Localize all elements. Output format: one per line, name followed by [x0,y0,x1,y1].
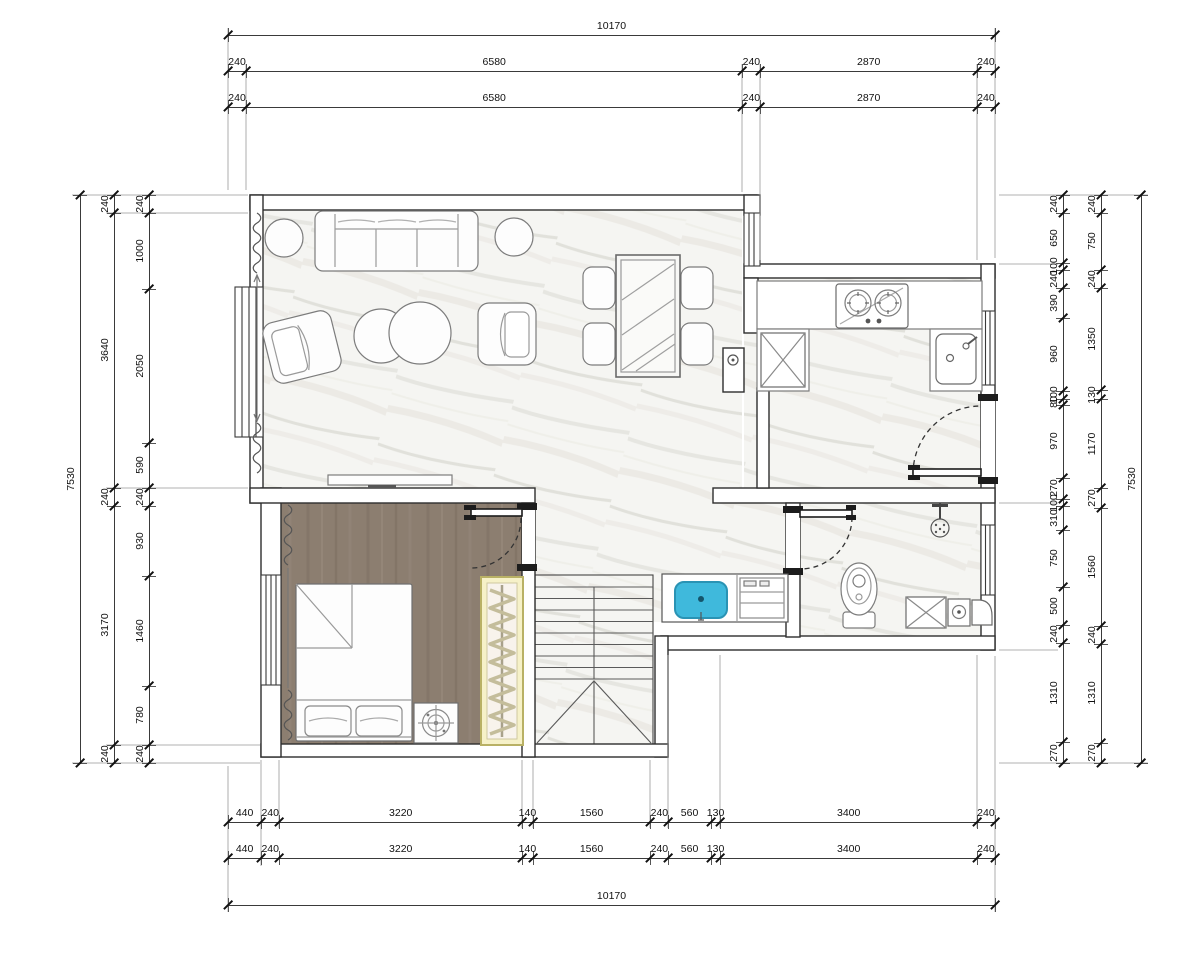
vanity-cabinet [740,578,784,618]
floor-plan-drawing [0,0,1200,955]
door-leaf [800,510,852,517]
floor-plan-page: 1017024065802402870240240658024028702404… [0,0,1200,955]
wall-kitchen-stub [744,278,758,333]
vanity-counter [662,574,788,622]
door-leaf [913,469,981,476]
dining-table [616,255,680,377]
bedside-unit [414,703,458,743]
coffee-table-large [389,302,451,364]
refrigerator [761,333,805,387]
dining-chair [681,323,713,365]
toilet [841,563,877,628]
corner-shelf [972,600,992,625]
wall-mid-left [250,488,535,503]
stove-cooktop [836,284,908,328]
basin-drain [698,596,704,602]
sofa [315,211,478,271]
window-kitchen-right [981,311,995,385]
window-bathroom-right [981,525,995,595]
bedroom-furniture [296,577,523,745]
wall-top [250,195,757,210]
window-top-jog [744,213,760,266]
kitchen-sink [936,334,977,384]
pillow [356,706,402,736]
dining-chair [681,267,713,309]
floor-drain [948,599,970,626]
column-hinge-dot [732,359,735,362]
pillow [305,706,351,736]
wall-kitchen-top [744,264,995,278]
window-living-left [235,287,263,437]
wall-mid-right [713,488,995,503]
washing-machine [906,597,946,628]
side-table-left [265,219,303,257]
door-leaf [471,509,522,516]
armchair-right [478,303,536,365]
window-bedroom-left [261,575,281,685]
dining-chair [583,267,615,309]
wall-bottom [261,744,668,757]
dining-chair [583,323,615,365]
side-table-right [495,218,533,256]
bed [296,584,412,741]
wardrobe [481,577,523,745]
wall-top-jog [744,195,760,215]
wall-bottom-right [661,636,995,650]
wall-step [655,636,668,757]
wall-kitchen-lower-stub [757,388,769,488]
